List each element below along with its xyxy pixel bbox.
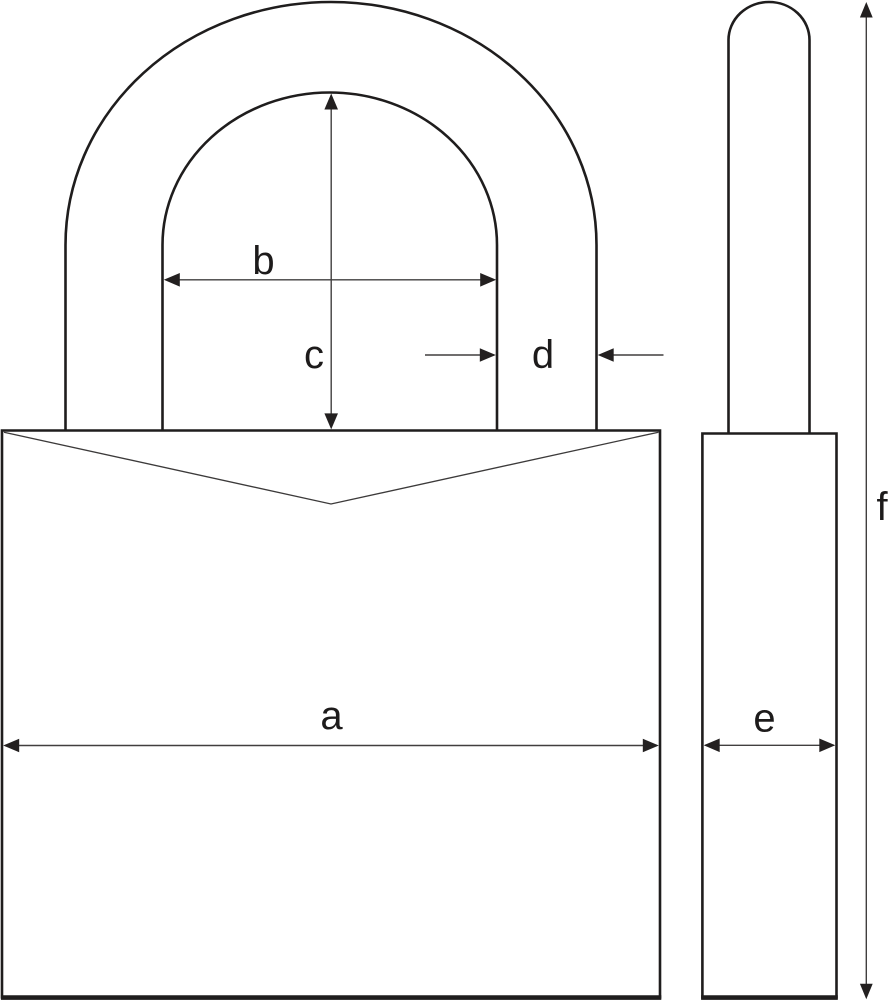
svg-text:a: a [320,694,343,738]
svg-text:c: c [304,333,324,377]
svg-text:e: e [753,697,775,741]
svg-text:b: b [252,239,274,283]
svg-text:f: f [877,485,889,529]
svg-text:d: d [532,333,554,377]
